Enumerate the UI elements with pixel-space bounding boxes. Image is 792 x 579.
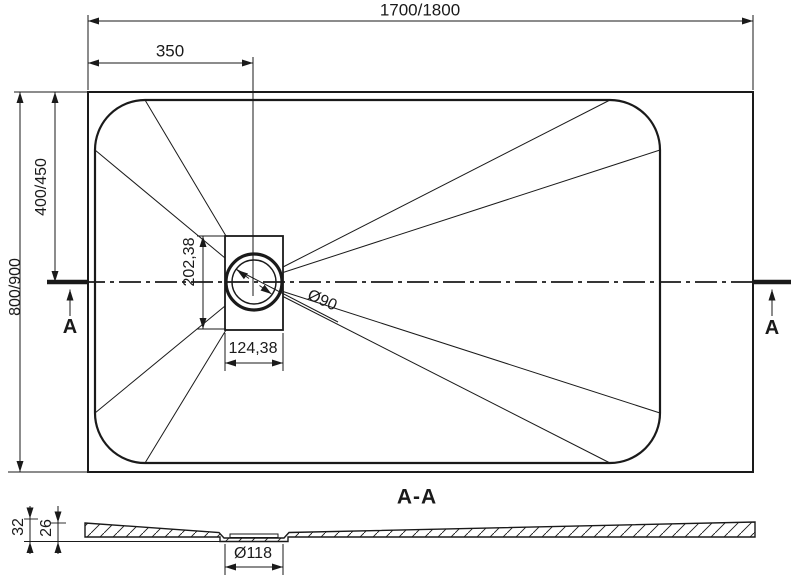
dim-section-recess-label: Ø118 <box>234 546 272 562</box>
dim-section-surface-height-label: 26 <box>39 519 55 537</box>
section-cut-markers <box>47 282 791 316</box>
plan-view <box>8 15 791 472</box>
drain-box <box>225 236 283 330</box>
dim-drain-box-height-label: 202,38 <box>182 238 198 287</box>
dim-drain-box-width-label: 124,38 <box>229 341 278 357</box>
dim-section-edge-height-label: 32 <box>11 518 27 536</box>
section-cut-letter-left: A <box>63 317 77 337</box>
drain-cover-plate <box>230 534 278 538</box>
section-title: A-A <box>397 487 437 508</box>
shower-tray-technical-drawing: 1700/1800 350 800/900 400/450 202,38 124… <box>0 0 792 579</box>
section-body <box>85 522 755 542</box>
dim-drain-center-label: 400/450 <box>34 158 50 216</box>
dim-length-label: 1700/1800 <box>380 2 460 19</box>
section-view <box>24 506 755 575</box>
dim-width-label: 800/900 <box>8 258 24 316</box>
dim-length <box>88 15 753 90</box>
dim-drain-offset-label: 350 <box>156 43 184 60</box>
section-cut-letter-right: A <box>765 318 779 338</box>
